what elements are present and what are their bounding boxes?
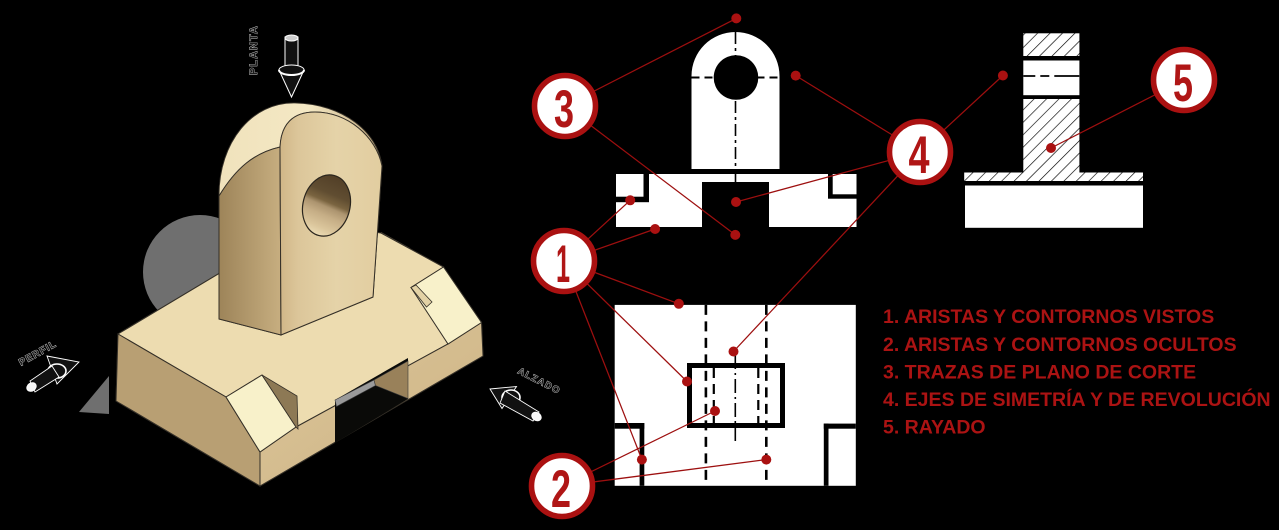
svg-text:1: 1: [556, 235, 570, 294]
svg-text:3: 3: [554, 80, 574, 139]
svg-text:2. ARISTAS Y CONTORNOS OCULTOS: 2. ARISTAS Y CONTORNOS OCULTOS: [883, 334, 1237, 356]
svg-text:2: 2: [551, 460, 571, 519]
svg-text:5: 5: [1173, 54, 1193, 113]
svg-text:3. TRAZAS DE PLANO DE CORTE: 3. TRAZAS DE PLANO DE CORTE: [883, 362, 1196, 384]
svg-text:4: 4: [909, 126, 930, 185]
svg-text:4. EJES DE SIMETRÍA Y DE REVOL: 4. EJES DE SIMETRÍA Y DE REVOLUCIÓN: [883, 387, 1271, 411]
svg-text:PLANTA: PLANTA: [248, 25, 260, 75]
svg-text:1. ARISTAS Y CONTORNOS VISTOS: 1. ARISTAS Y CONTORNOS VISTOS: [883, 306, 1214, 328]
svg-text:5. RAYADO: 5. RAYADO: [883, 417, 986, 439]
